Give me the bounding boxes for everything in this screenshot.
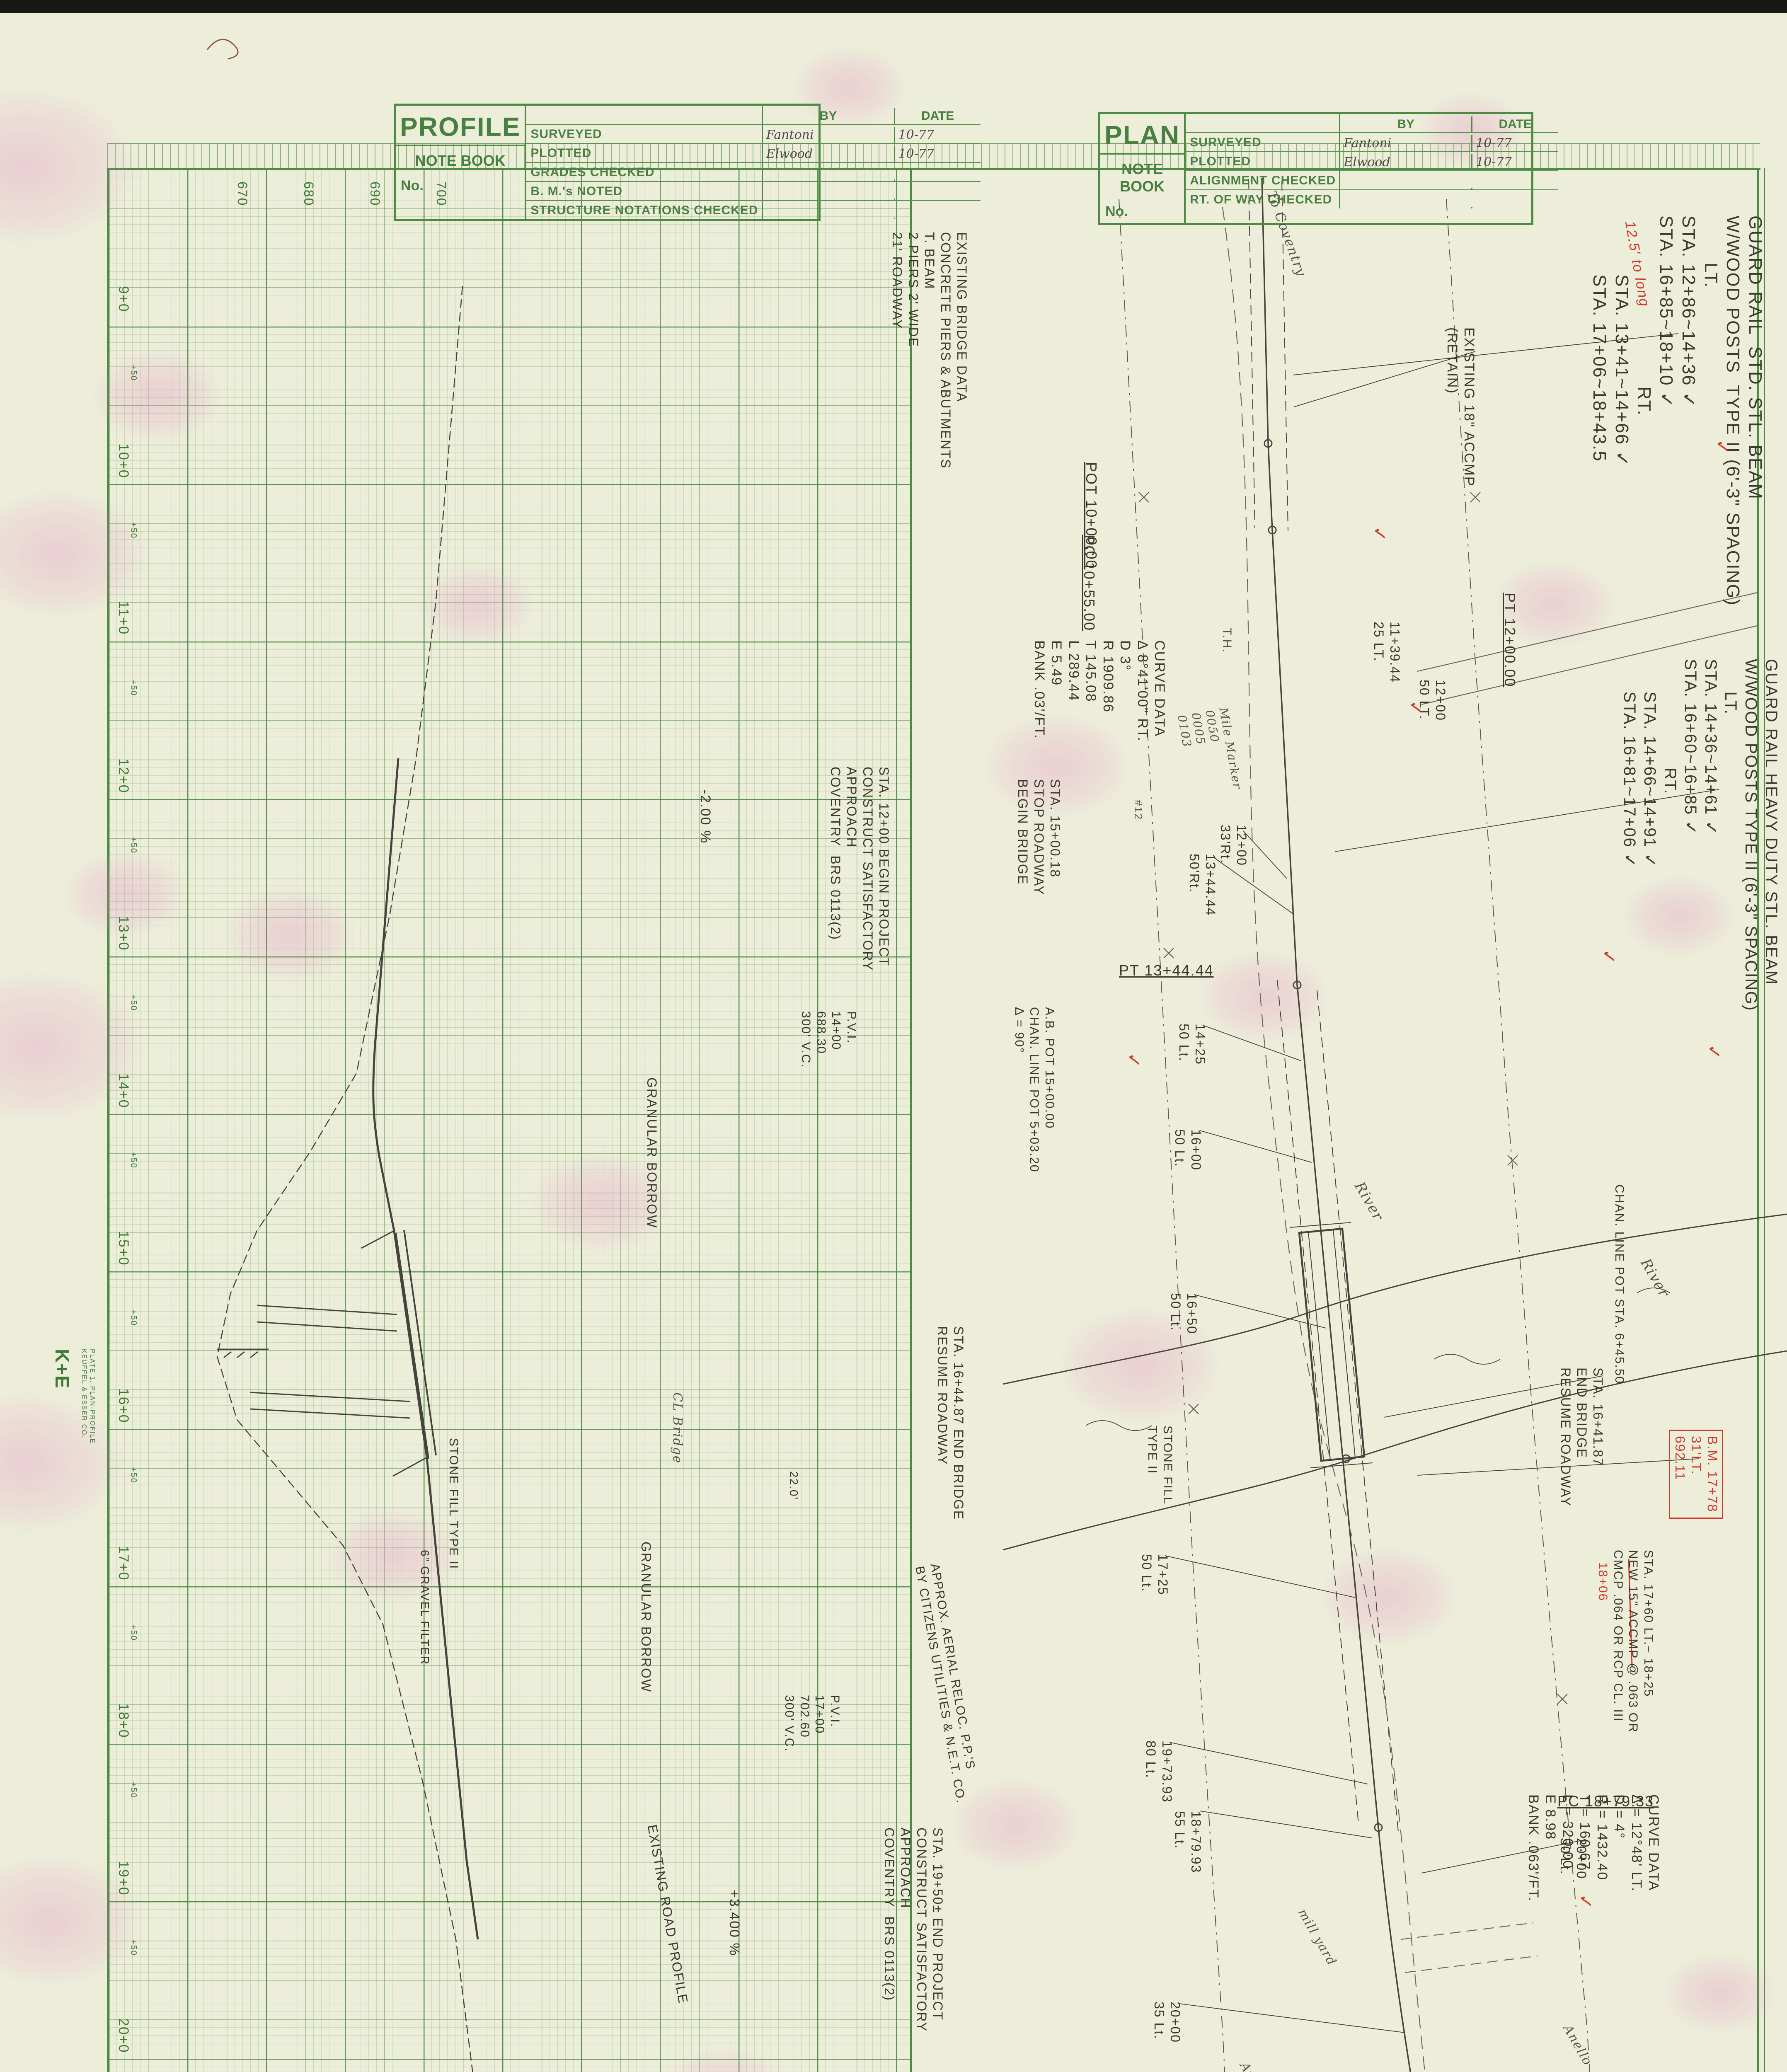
note-new-accmp: STA. 17+60 LT.~ 18+25 NEW 15" ACCMP @ .0…	[1610, 1550, 1656, 1733]
label-chan-line-pot: CHAN. LINE POT STA. 6+45.50	[1611, 1184, 1627, 1384]
stamp-row-date	[1472, 207, 1558, 208]
flag-11-39: 11+39.44 25 LT.	[1371, 622, 1403, 683]
station-label: 13+0	[115, 916, 132, 951]
station-label: 20+0	[115, 2018, 132, 2053]
bridge-plan-stringers	[1290, 1222, 1373, 1468]
label-pc-1879: PC 18+79.33	[1557, 1792, 1654, 1811]
elevation-label: 700	[433, 182, 449, 206]
check-mark: ✓	[1404, 700, 1426, 716]
stamp-row-date: 10-77	[895, 127, 981, 143]
old-road-dashed	[1223, 207, 1475, 2072]
flag-1725-50lt: 17+25 50 Lt.	[1138, 1554, 1171, 1595]
scan-edge-top	[0, 0, 1787, 13]
note-end-bridge-plan: STA. 16+41.87 END BRIDGE RESUME ROADWAY	[1557, 1368, 1606, 1507]
half-station-label: +50	[128, 522, 138, 539]
label-cl-bridge: CL Bridge	[669, 1392, 685, 1464]
stamp-row-label: SURVEYED	[1186, 133, 1340, 151]
label-mill-yard: mill yard	[1294, 1906, 1339, 1969]
half-station-label: +50	[128, 1467, 138, 1484]
flag-197393: 19+73.93 80 Lt.	[1143, 1740, 1175, 1803]
stamp-row-by: Elwood	[1340, 154, 1472, 170]
stamp-row-by: Fantoni	[763, 127, 895, 143]
check-mark: ✓	[1702, 1044, 1725, 1060]
flag-1650-50lt: 16+50 50 Lt.	[1167, 1293, 1200, 1334]
label-granular-borrow-2: GRANULAR BORROW	[638, 1542, 654, 1692]
scan-blotch	[1322, 1550, 1455, 1643]
river-bank-upper	[1003, 1214, 1787, 1384]
margin-brand: K+E	[51, 1349, 74, 1389]
stamp-col-date: DATE	[895, 108, 981, 124]
stamp-row-date	[895, 218, 981, 219]
stamp-row-by: Elwood	[763, 146, 895, 162]
flag-1600-50lt: 16+00 50 Lt.	[1172, 1129, 1204, 1171]
elevation-label: 680	[300, 182, 317, 206]
bridge-plan-outline	[1299, 1229, 1364, 1461]
elevation-label: 690	[367, 182, 383, 206]
flag-2000-35lt: 20+00 35 Lt.	[1151, 2002, 1183, 2043]
label-river-1: River	[1351, 1179, 1387, 1224]
elevation-label: 670	[234, 182, 250, 206]
station-label: 18+0	[115, 1703, 132, 1738]
check-mark: ✓	[1711, 439, 1733, 455]
label-gravel-filter: 6" GRAVEL FILTER	[418, 1550, 432, 1665]
note-pvi-14: P.V.I. 14+00 688.30 300' V.C.	[798, 1011, 859, 1068]
flag-1344-50rt: 13+44.44 50'Rt.	[1186, 854, 1218, 916]
station-label: 10+0	[115, 443, 132, 479]
stamp-row-label: STRUCTURE NOTATIONS CHECKED	[526, 201, 763, 219]
station-label: 12+0	[115, 758, 132, 794]
label-river-2: River	[1637, 1256, 1673, 1301]
flag-187993: 18+79.93 55 Lt.	[1172, 1811, 1204, 1873]
label-dim-22: 22.0'	[787, 1471, 801, 1500]
label-anello-2: Anello	[1559, 2022, 1595, 2069]
stamp-row-label: PLOTTED	[526, 144, 763, 162]
half-station-label: +50	[128, 365, 138, 381]
half-station-label: +50	[128, 1624, 138, 1641]
half-station-label: +50	[128, 1310, 138, 1326]
note-guard-rail-heavy: GUARD RAIL HEAVY DUTY STL. BEAM W/WOOD P…	[1620, 659, 1781, 1011]
red-squiggle-top-left	[207, 39, 238, 59]
label-pole-12: #12	[1131, 800, 1145, 820]
station-label: 17+0	[115, 1546, 132, 1581]
label-grade-minus-2: -2.00 %	[697, 789, 714, 844]
profile-title-block: PROFILE NOTE BOOK No. BY DATE SURVEYEDFa…	[394, 104, 821, 221]
stamp-col-by: BY	[1340, 116, 1472, 132]
label-stone-fill-plan: STONE FILL TYPE II	[1145, 1426, 1175, 1505]
note-red-18-06: 18+06	[1595, 1562, 1610, 1601]
note-stop-roadway: STA. 15+00.18 STOP ROADWAY BEGIN BRIDGE	[1015, 779, 1063, 896]
flag-1425-50lt: 14+25 50 Lt.	[1176, 1024, 1208, 1065]
label-mile-marker: Mile Marker 0050 0005 0103	[1174, 707, 1244, 798]
check-mark: ✓	[1574, 1894, 1596, 1910]
stamp-row-label: GRADES CHECKED	[526, 163, 763, 181]
half-station-label: +50	[128, 1939, 138, 1956]
note-curve-data-1: CURVE DATA Δ 8°41'00" RT. D 3° R 1909.86…	[1030, 640, 1168, 742]
half-station-label: +50	[128, 1152, 138, 1169]
label-grade-plus-34: +3.400 %	[726, 1890, 743, 1956]
half-station-label: +50	[128, 680, 138, 696]
stamp-row-label: ALIGNMENT CHECKED	[1186, 171, 1340, 189]
note-bm-1778: B.M. 17+78 31'LT. 692.11	[1669, 1430, 1723, 1519]
half-station-label: +50	[128, 1782, 138, 1798]
station-label: 11+0	[115, 601, 132, 635]
stamp-row-label: SURVEYED	[526, 125, 763, 143]
stamp-no-label: No.	[396, 171, 525, 197]
stamp-row-by	[1340, 207, 1472, 208]
label-stone-fill-profile: STONE FILL TYPE II	[446, 1438, 461, 1569]
station-label: 15+0	[115, 1231, 132, 1266]
stamp-col-by: BY	[763, 108, 895, 124]
label-pc-10-55: PC 10+55.00	[1080, 535, 1098, 631]
station-label: 14+0	[115, 1073, 132, 1109]
half-station-label: +50	[128, 837, 138, 854]
note-begin-project: STA. 12+00 BEGIN PROJECT CONSTRUCT SATIS…	[827, 767, 892, 971]
stamp-row-by	[763, 218, 895, 219]
stamp-row-date: 10-77	[1472, 154, 1558, 170]
stamp-notebook-label: NOTE BOOK	[396, 145, 525, 171]
plan-profile-sheet: PROFILE NOTE BOOK No. BY DATE SURVEYEDFa…	[0, 0, 1787, 2072]
stamp-title: PROFILE	[396, 106, 525, 145]
check-mark: ✓	[1368, 526, 1390, 542]
stamp-row-label: PLOTTED	[1186, 152, 1340, 170]
profile-grid	[107, 169, 912, 2072]
note-aerial-reloc: APPROX. AERIAL RELOC. P.P.'S BY CITIZENS…	[912, 1562, 983, 1805]
check-mark: ✓	[1597, 949, 1620, 965]
flag-12-33rt: 12+00 33'Rt.	[1217, 825, 1249, 866]
label-th: T.H.	[1219, 628, 1234, 653]
stamp-col-date: DATE	[1472, 116, 1558, 132]
stamp-row-label: B. M.'s NOTED	[526, 182, 763, 200]
note-existing-bridge-data: EXISTING BRIDGE DATA CONCRETE PIERS & AB…	[889, 232, 970, 469]
note-end-project: STA. 19+50± END PROJECT CONSTRUCT SATISF…	[881, 1828, 946, 2032]
scan-blotch	[1202, 953, 1326, 1040]
label-anello-1: Anello	[1236, 2060, 1272, 2072]
label-granular-borrow-1: GRANULAR BORROW	[644, 1077, 660, 1228]
flag-2000-50lt: 20+00 50'Lt.	[1557, 1838, 1589, 1879]
plan-title-block: PLAN NOTE BOOK No. BY DATE SURVEYEDFanto…	[1098, 112, 1533, 225]
drive-stub	[1401, 1923, 1538, 1973]
stamp-row-date: 10-77	[1472, 135, 1558, 151]
stamp-row-label: RT. OF WAY CHECKED	[1186, 190, 1340, 208]
stamp-row-by: Fantoni	[1340, 135, 1472, 151]
note-end-bridge-profile: STA. 16+44.87 END BRIDGE RESUME ROADWAY	[934, 1326, 966, 1520]
label-existing-18-accmp: EXISTING 18" ACCMP (RETAIN)	[1443, 327, 1477, 487]
check-mark: ✓	[1122, 1053, 1145, 1069]
station-label: 19+0	[115, 1861, 132, 1896]
note-ab-pot: A.B. POT 15+00.00 CHAN. LINE POT 5+03.20…	[1011, 1007, 1057, 1172]
note-guard-rail-std: GUARD RAIL STD. STL. BEAM W/WOOD POSTS T…	[1588, 215, 1766, 606]
half-station-label: +50	[128, 995, 138, 1011]
stamp-no-label: No.	[1100, 197, 1184, 223]
stamp-title: PLAN	[1100, 114, 1184, 153]
station-label: 9+0	[115, 286, 132, 312]
label-pt-1344: PT 13+44.44	[1119, 961, 1214, 980]
station-label: 16+0	[115, 1388, 132, 1423]
stamp-row-date: 10-77	[895, 146, 981, 162]
scan-blotch	[0, 1397, 120, 1530]
margin-product: PLATE 1, PLAN-PROFILE KEUFFEL & ESSER CO…	[80, 1349, 96, 1444]
label-pt-12: PT 12+00.00	[1501, 593, 1519, 687]
note-pvi-17: P.V.I. 17+00 702.60 300' V.C.	[782, 1695, 842, 1752]
stamp-notebook-label: NOTE BOOK	[1100, 153, 1184, 197]
